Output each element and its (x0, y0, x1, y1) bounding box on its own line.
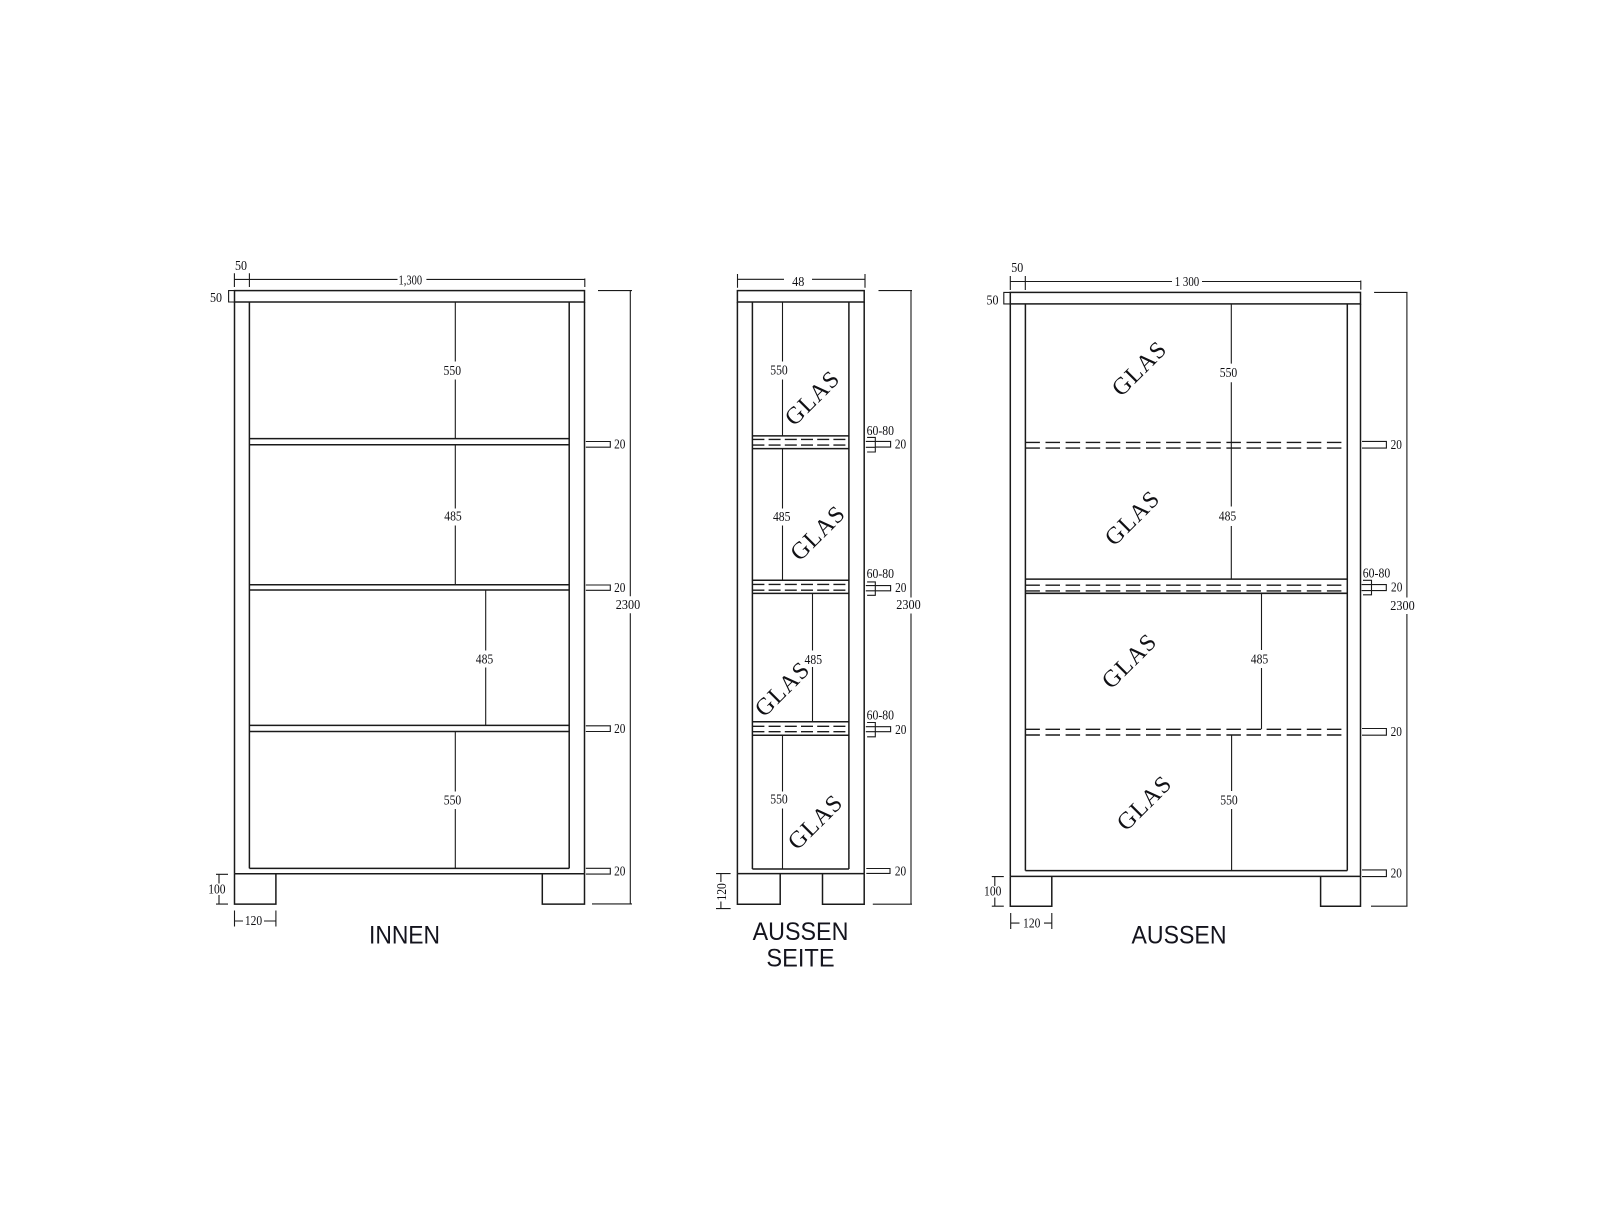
svg-text:AUSSEN: AUSSEN (753, 918, 849, 946)
svg-text:120: 120 (715, 883, 730, 900)
svg-text:60-80: 60-80 (1363, 567, 1390, 582)
svg-text:20: 20 (614, 722, 625, 737)
svg-text:2300: 2300 (896, 598, 920, 613)
svg-text:550: 550 (770, 363, 788, 378)
svg-text:20: 20 (1391, 581, 1402, 596)
svg-text:50: 50 (235, 259, 247, 274)
svg-text:1,300: 1,300 (399, 273, 423, 288)
svg-text:485: 485 (773, 510, 791, 525)
svg-text:120: 120 (1023, 917, 1040, 932)
svg-text:50: 50 (1011, 261, 1023, 276)
svg-text:50: 50 (210, 291, 222, 306)
svg-text:550: 550 (444, 793, 462, 808)
svg-text:2300: 2300 (1390, 599, 1414, 614)
svg-text:60-80: 60-80 (867, 567, 894, 582)
svg-text:485: 485 (805, 653, 823, 668)
svg-text:AUSSEN: AUSSEN (1132, 922, 1227, 950)
svg-text:SEITE: SEITE (766, 945, 834, 973)
svg-text:20: 20 (1391, 725, 1402, 740)
svg-text:50: 50 (987, 293, 999, 308)
svg-text:120: 120 (245, 914, 262, 929)
svg-text:550: 550 (1220, 793, 1238, 808)
svg-text:20: 20 (1391, 867, 1402, 882)
svg-text:60-80: 60-80 (867, 424, 894, 439)
svg-text:550: 550 (1220, 366, 1238, 381)
svg-text:100: 100 (208, 883, 225, 898)
svg-text:20: 20 (614, 438, 625, 453)
svg-text:550: 550 (444, 364, 462, 379)
svg-text:2300: 2300 (616, 598, 640, 613)
svg-text:20: 20 (614, 865, 625, 880)
svg-text:INNEN: INNEN (369, 921, 440, 949)
svg-text:485: 485 (444, 510, 462, 525)
svg-text:20: 20 (895, 865, 906, 880)
svg-text:1 300: 1 300 (1175, 275, 1200, 290)
svg-text:48: 48 (792, 275, 804, 290)
svg-text:20: 20 (895, 723, 906, 738)
svg-text:20: 20 (614, 581, 625, 596)
svg-text:100: 100 (984, 885, 1001, 900)
svg-text:485: 485 (476, 652, 494, 667)
svg-text:60-80: 60-80 (867, 709, 894, 724)
svg-text:550: 550 (770, 792, 788, 807)
svg-text:20: 20 (1391, 438, 1402, 453)
svg-text:485: 485 (1251, 652, 1269, 667)
svg-text:20: 20 (895, 438, 906, 453)
svg-text:485: 485 (1219, 510, 1237, 525)
svg-text:20: 20 (895, 581, 906, 596)
